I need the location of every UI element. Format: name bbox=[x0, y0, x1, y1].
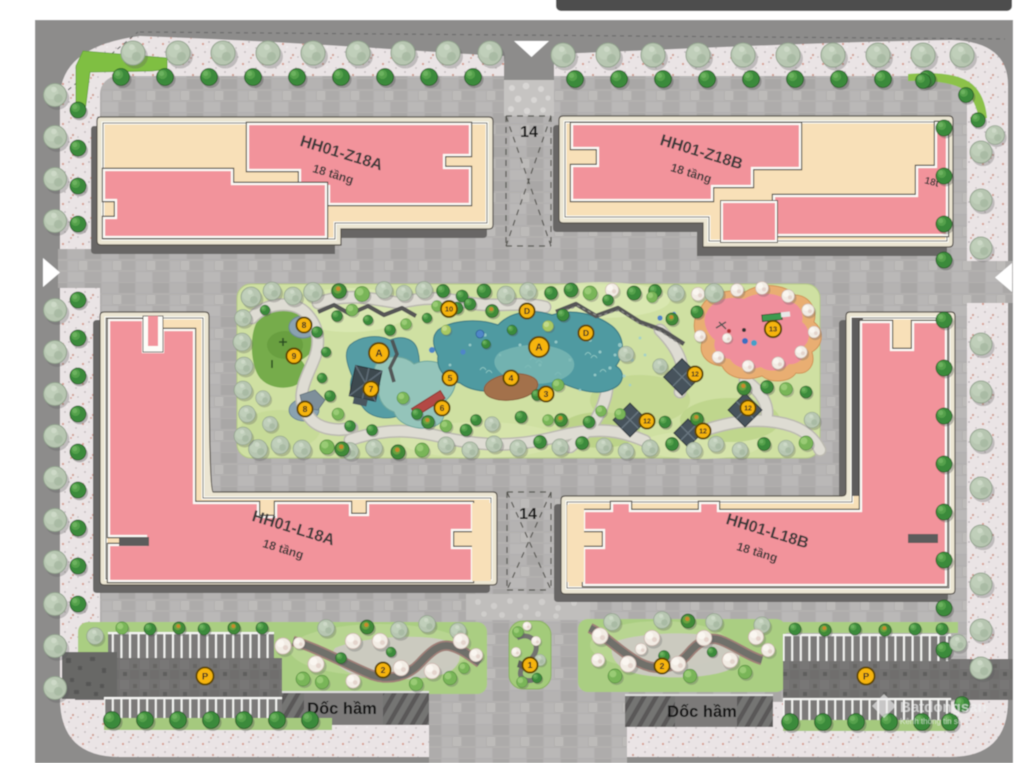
svg-text:P: P bbox=[863, 671, 870, 682]
svg-text:2: 2 bbox=[381, 665, 386, 675]
svg-text:12: 12 bbox=[744, 406, 752, 413]
svg-text:10: 10 bbox=[445, 305, 453, 314]
svg-text:12: 12 bbox=[699, 429, 707, 436]
svg-text:Kênh thông tin số 1: Kênh thông tin số 1 bbox=[900, 717, 969, 726]
svg-text:13: 13 bbox=[769, 325, 777, 334]
svg-text:3: 3 bbox=[544, 389, 549, 399]
svg-text:14: 14 bbox=[520, 124, 538, 141]
svg-text:9: 9 bbox=[292, 351, 297, 361]
svg-text:1: 1 bbox=[528, 660, 533, 670]
svg-text:12: 12 bbox=[643, 419, 651, 426]
svg-text:2: 2 bbox=[660, 661, 665, 671]
svg-text:A: A bbox=[535, 343, 542, 354]
svg-text:8: 8 bbox=[302, 320, 307, 330]
svg-text:12: 12 bbox=[691, 372, 699, 379]
svg-text:Dốc hầm: Dốc hầm bbox=[667, 703, 737, 721]
svg-text:6: 6 bbox=[440, 403, 445, 413]
svg-text:D: D bbox=[583, 328, 589, 338]
svg-text:8: 8 bbox=[303, 404, 308, 414]
svg-text:P: P bbox=[202, 671, 209, 682]
svg-text:D: D bbox=[524, 306, 530, 316]
svg-text:Batdongsan: Batdongsan bbox=[900, 699, 987, 716]
svg-text:A: A bbox=[375, 349, 382, 360]
svg-text:7: 7 bbox=[369, 384, 374, 394]
svg-text:4: 4 bbox=[509, 373, 514, 383]
svg-text:Dốc hầm: Dốc hầm bbox=[307, 700, 377, 718]
svg-text:14: 14 bbox=[519, 506, 537, 523]
svg-text:5: 5 bbox=[448, 373, 453, 383]
